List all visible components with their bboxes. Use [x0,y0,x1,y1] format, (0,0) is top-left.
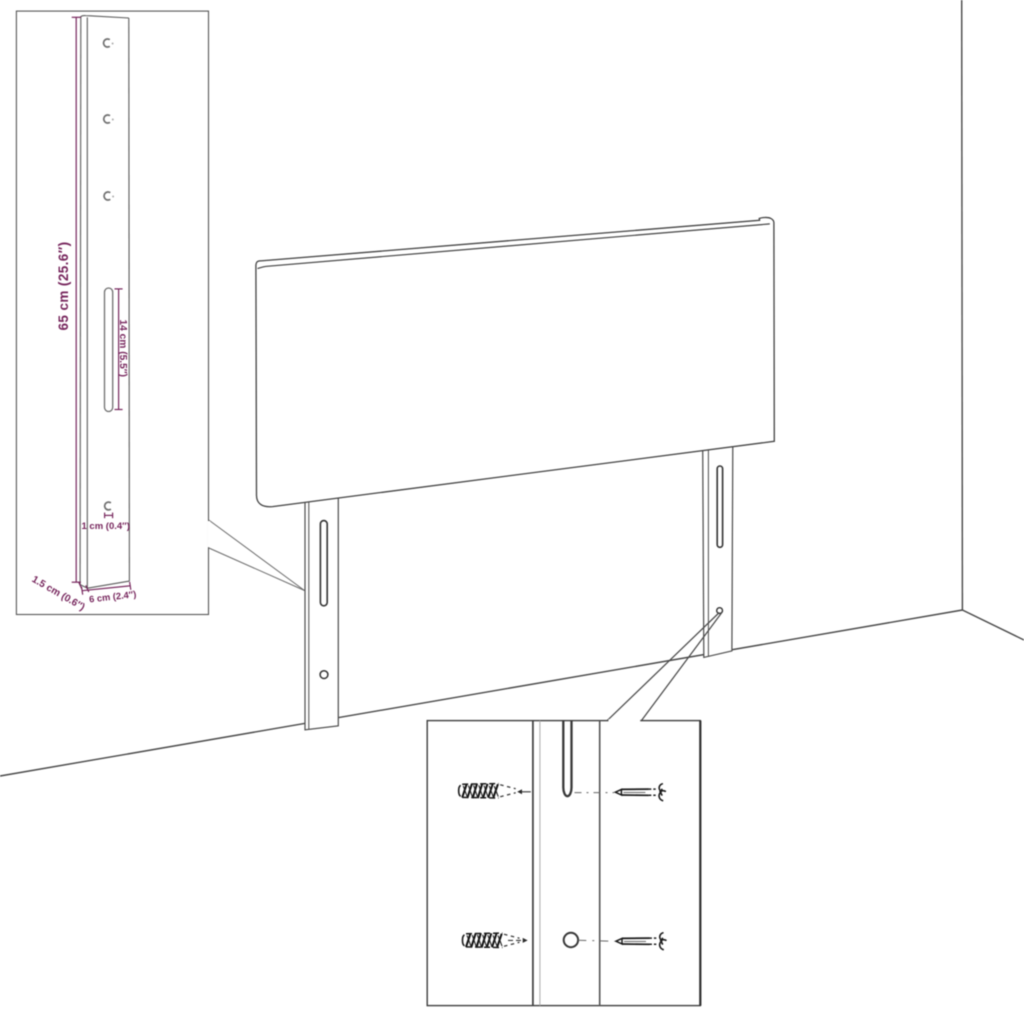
svg-text:1 cm (0.4″): 1 cm (0.4″) [82,521,130,532]
svg-text:14 cm (5.5″): 14 cm (5.5″) [117,320,128,378]
svg-text:65 cm (25.6″): 65 cm (25.6″) [56,242,71,331]
